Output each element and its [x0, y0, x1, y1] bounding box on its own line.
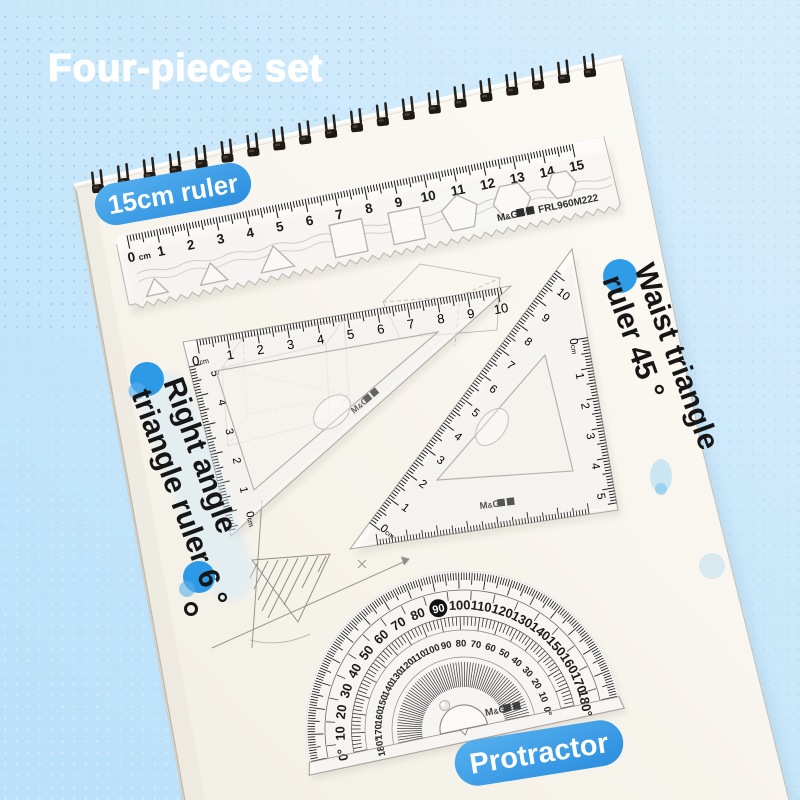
svg-text:90: 90	[440, 639, 453, 652]
svg-text:90: 90	[431, 602, 445, 616]
svg-text:100: 100	[449, 597, 471, 613]
svg-text:12: 12	[479, 175, 497, 193]
svg-text:70: 70	[470, 639, 482, 651]
svg-text:Four-piece set: Four-piece set	[48, 47, 323, 90]
svg-text:20: 20	[333, 704, 350, 720]
svg-text:10: 10	[419, 187, 437, 205]
svg-text:10: 10	[332, 726, 347, 741]
svg-text:80: 80	[456, 638, 467, 649]
svg-text:110: 110	[470, 597, 493, 615]
svg-text:10: 10	[493, 300, 510, 317]
